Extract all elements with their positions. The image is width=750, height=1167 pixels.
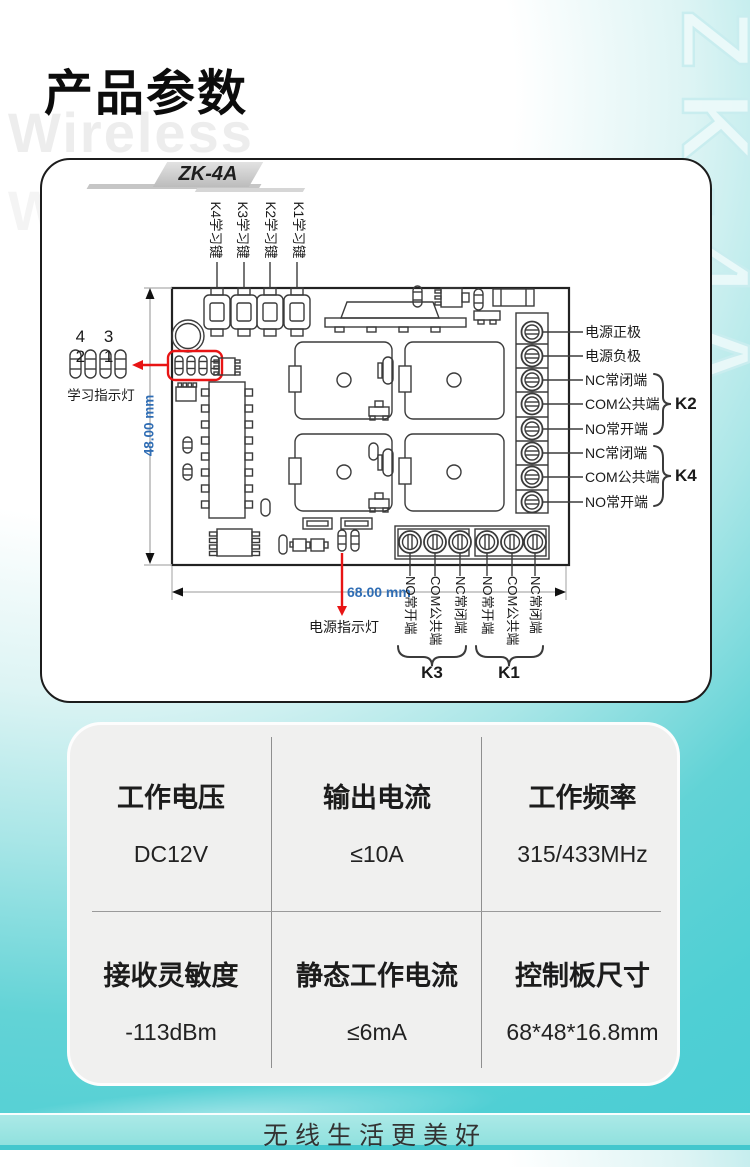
terminal-label-k4-com: COM公共端 (585, 469, 660, 485)
spec-cell-voltage: 工作电压 DC12V (70, 733, 272, 911)
spec-value: ≤6mA (347, 1019, 407, 1046)
led-numbers: 4 3 2 1 (66, 327, 130, 367)
group-label-k1: K1 (487, 663, 531, 683)
spec-value: 315/433MHz (517, 841, 647, 868)
relays (289, 342, 504, 511)
spec-label: 接收灵敏度 (104, 954, 239, 993)
group-label-k2: K2 (675, 394, 697, 414)
spec-cell-sensitivity: 接收灵敏度 -113dBm (70, 925, 272, 1075)
key-label-k1: K1学习键 (289, 170, 307, 290)
power-led (337, 530, 359, 616)
discrete-components (183, 357, 393, 554)
spec-cell-frequency: 工作频率 315/433MHz (482, 733, 683, 911)
pcb-outline (172, 288, 569, 565)
spec-label: 静态工作电流 (296, 954, 458, 993)
spec-label: 控制板尺寸 (515, 954, 650, 993)
terminal-label-power-neg: 电源负极 (585, 348, 641, 364)
learn-led-highlight (132, 351, 222, 380)
key-label-k2: K2学习键 (261, 170, 279, 290)
buzzer (172, 320, 204, 352)
spec-table: 工作电压 DC12V 输出电流 ≤10A 工作频率 315/433MHz 接收灵… (67, 722, 680, 1086)
spec-value: DC12V (134, 841, 208, 868)
spec-value: 68*48*16.8mm (506, 1019, 658, 1046)
spec-label: 工作频率 (529, 776, 637, 815)
terminal-label-power-pos: 电源正极 (585, 324, 641, 340)
spec-cell-quiescent-current: 静态工作电流 ≤6mA (272, 925, 482, 1075)
dimension-height-label: 48.00 mm (142, 381, 157, 471)
board-diagram-card: ZK-4A K4学习键 K3学习键 K2学习键 K1学习键 4 3 2 1 学习… (40, 158, 712, 703)
footer-tagline: 无线生活更美好 (0, 1116, 750, 1152)
terminal-label-k3-nc: NC常闭端 (452, 576, 468, 686)
ic-chips (176, 358, 260, 556)
terminal-label-k4-nc: NC常闭端 (585, 445, 647, 461)
learn-led-label: 学习指示灯 (60, 384, 142, 404)
spec-divider-horizontal (92, 911, 661, 912)
spec-label: 工作电压 (117, 776, 225, 815)
group-label-k3: K3 (410, 663, 454, 683)
power-led-label: 电源指示灯 (302, 617, 386, 637)
spec-value: -113dBm (125, 1019, 217, 1046)
key-label-k3: K3学习键 (233, 170, 251, 290)
terminal-label-k2-no: NO常开端 (585, 421, 648, 437)
terminal-label-k2-com: COM公共端 (585, 396, 660, 412)
group-label-k4: K4 (675, 466, 697, 486)
spec-label: 输出电流 (323, 776, 431, 815)
page-title: 产品参数 (44, 54, 248, 125)
key-label-k4: K4学习键 (206, 170, 224, 290)
terminal-label-k4-no: NO常开端 (585, 494, 648, 510)
spec-value: ≤10A (350, 841, 404, 868)
receiver-module (325, 286, 534, 332)
bottom-terminal-strip (395, 526, 549, 666)
spec-cell-board-size: 控制板尺寸 68*48*16.8mm (482, 925, 683, 1075)
spec-cell-output-current: 输出电流 ≤10A (272, 733, 482, 911)
terminal-label-k2-nc: NC常闭端 (585, 372, 647, 388)
